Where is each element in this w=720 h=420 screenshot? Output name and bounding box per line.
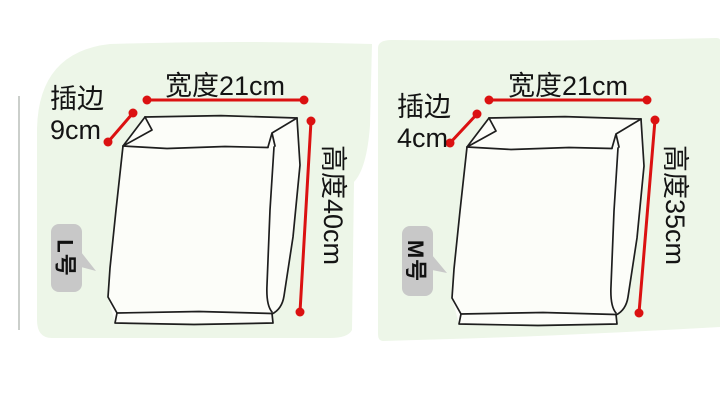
gusset-label-line2-left: 9cm bbox=[50, 115, 104, 146]
width-dimension-label-right: 宽度21cm bbox=[488, 64, 648, 103]
gusset-label-line2-right: 4cm bbox=[397, 123, 451, 154]
size-badge-left: L号 bbox=[51, 224, 82, 292]
bag-drawing-right bbox=[452, 117, 644, 326]
diagram-artwork bbox=[0, 0, 720, 420]
height-dimension-label-right: 高度35cm bbox=[664, 140, 692, 270]
size-badge-text-left: L号 bbox=[51, 239, 83, 276]
left-edge-rule bbox=[18, 96, 20, 330]
width-dimension-label-left: 宽度21cm bbox=[145, 64, 305, 103]
height-dimension-label-left: 高度40cm bbox=[322, 140, 350, 270]
gusset-label-line1-right: 插边 bbox=[397, 92, 451, 123]
gusset-label-line1-left: 插边 bbox=[50, 84, 104, 115]
gusset-dimension-label-left: 插边 9cm bbox=[50, 84, 104, 146]
size-badge-right: M号 bbox=[402, 226, 433, 296]
product-dimension-diagram: 宽度21cm 插边 9cm 高度40cm L号 宽度21cm 插边 4cm 高度… bbox=[0, 0, 720, 420]
bag-drawing-left bbox=[108, 116, 300, 325]
size-badge-text-right: M号 bbox=[402, 240, 434, 282]
gusset-dimension-label-right: 插边 4cm bbox=[397, 92, 451, 154]
